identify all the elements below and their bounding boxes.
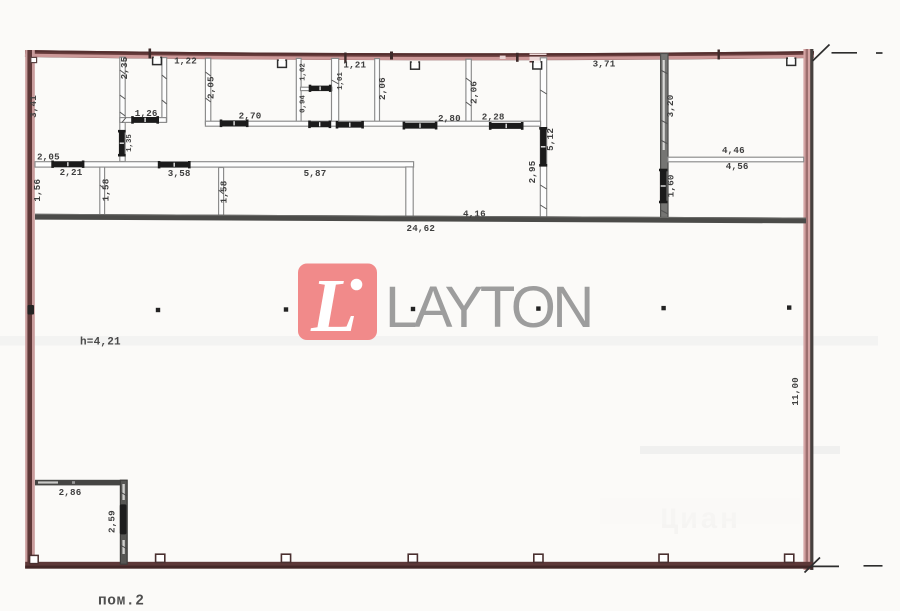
svg-text:2,06: 2,06 [468,81,479,104]
svg-text:L: L [310,264,357,348]
svg-text:1,26: 1,26 [135,108,158,119]
svg-text:5,87: 5,87 [304,168,327,179]
svg-text:1,22: 1,22 [174,55,197,66]
svg-text:5,12: 5,12 [545,128,556,151]
svg-text:1,02: 1,02 [300,63,308,81]
svg-text:2,95: 2,95 [527,160,538,183]
svg-text:2,59: 2,59 [106,510,117,533]
svg-text:4,56: 4,56 [726,161,749,172]
svg-text:LAYTON: LAYTON [385,275,591,340]
svg-text:1,58: 1,58 [219,180,230,203]
svg-text:3,71: 3,71 [593,58,616,69]
svg-text:0,94: 0,94 [300,95,308,113]
svg-text:2,05: 2,05 [206,76,217,99]
svg-text:2,05: 2,05 [37,152,60,163]
svg-text:2,35: 2,35 [119,56,130,79]
svg-text:1,21: 1,21 [343,60,366,71]
svg-text:1,56: 1,56 [32,179,43,202]
svg-text:2,28: 2,28 [482,112,505,123]
svg-text:2,70: 2,70 [239,110,262,121]
svg-text:24,62: 24,62 [407,223,436,234]
svg-text:h=4,21: h=4,21 [80,337,121,349]
svg-text:3,58: 3,58 [168,168,191,179]
svg-text:1,35: 1,35 [126,134,134,152]
svg-text:3,20: 3,20 [665,95,676,118]
svg-text:2,86: 2,86 [59,487,82,498]
svg-text:11,00: 11,00 [790,377,801,406]
svg-text:1,60: 1,60 [666,174,677,197]
svg-text:3,41: 3,41 [28,95,39,118]
svg-text:2,21: 2,21 [60,167,83,178]
svg-text:1,58: 1,58 [101,178,112,201]
svg-text:пом.2: пом.2 [98,594,145,610]
svg-text:1,01: 1,01 [337,72,345,90]
svg-text:4,46: 4,46 [722,145,745,156]
svg-text:4,16: 4,16 [463,208,486,219]
svg-text:2,80: 2,80 [438,113,461,124]
svg-text:2,06: 2,06 [377,77,388,100]
